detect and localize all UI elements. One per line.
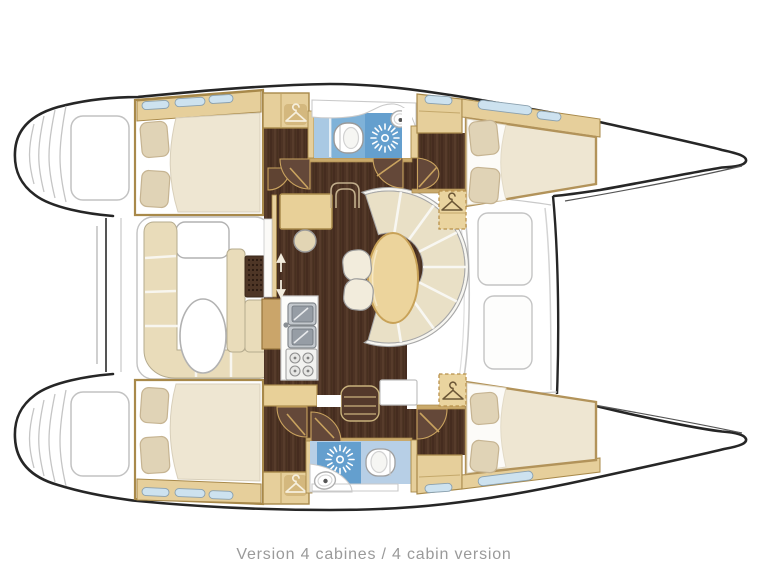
svg-text:Version 4 cabines / 4 cabin ve: Version 4 cabines / 4 cabin version bbox=[236, 546, 511, 563]
